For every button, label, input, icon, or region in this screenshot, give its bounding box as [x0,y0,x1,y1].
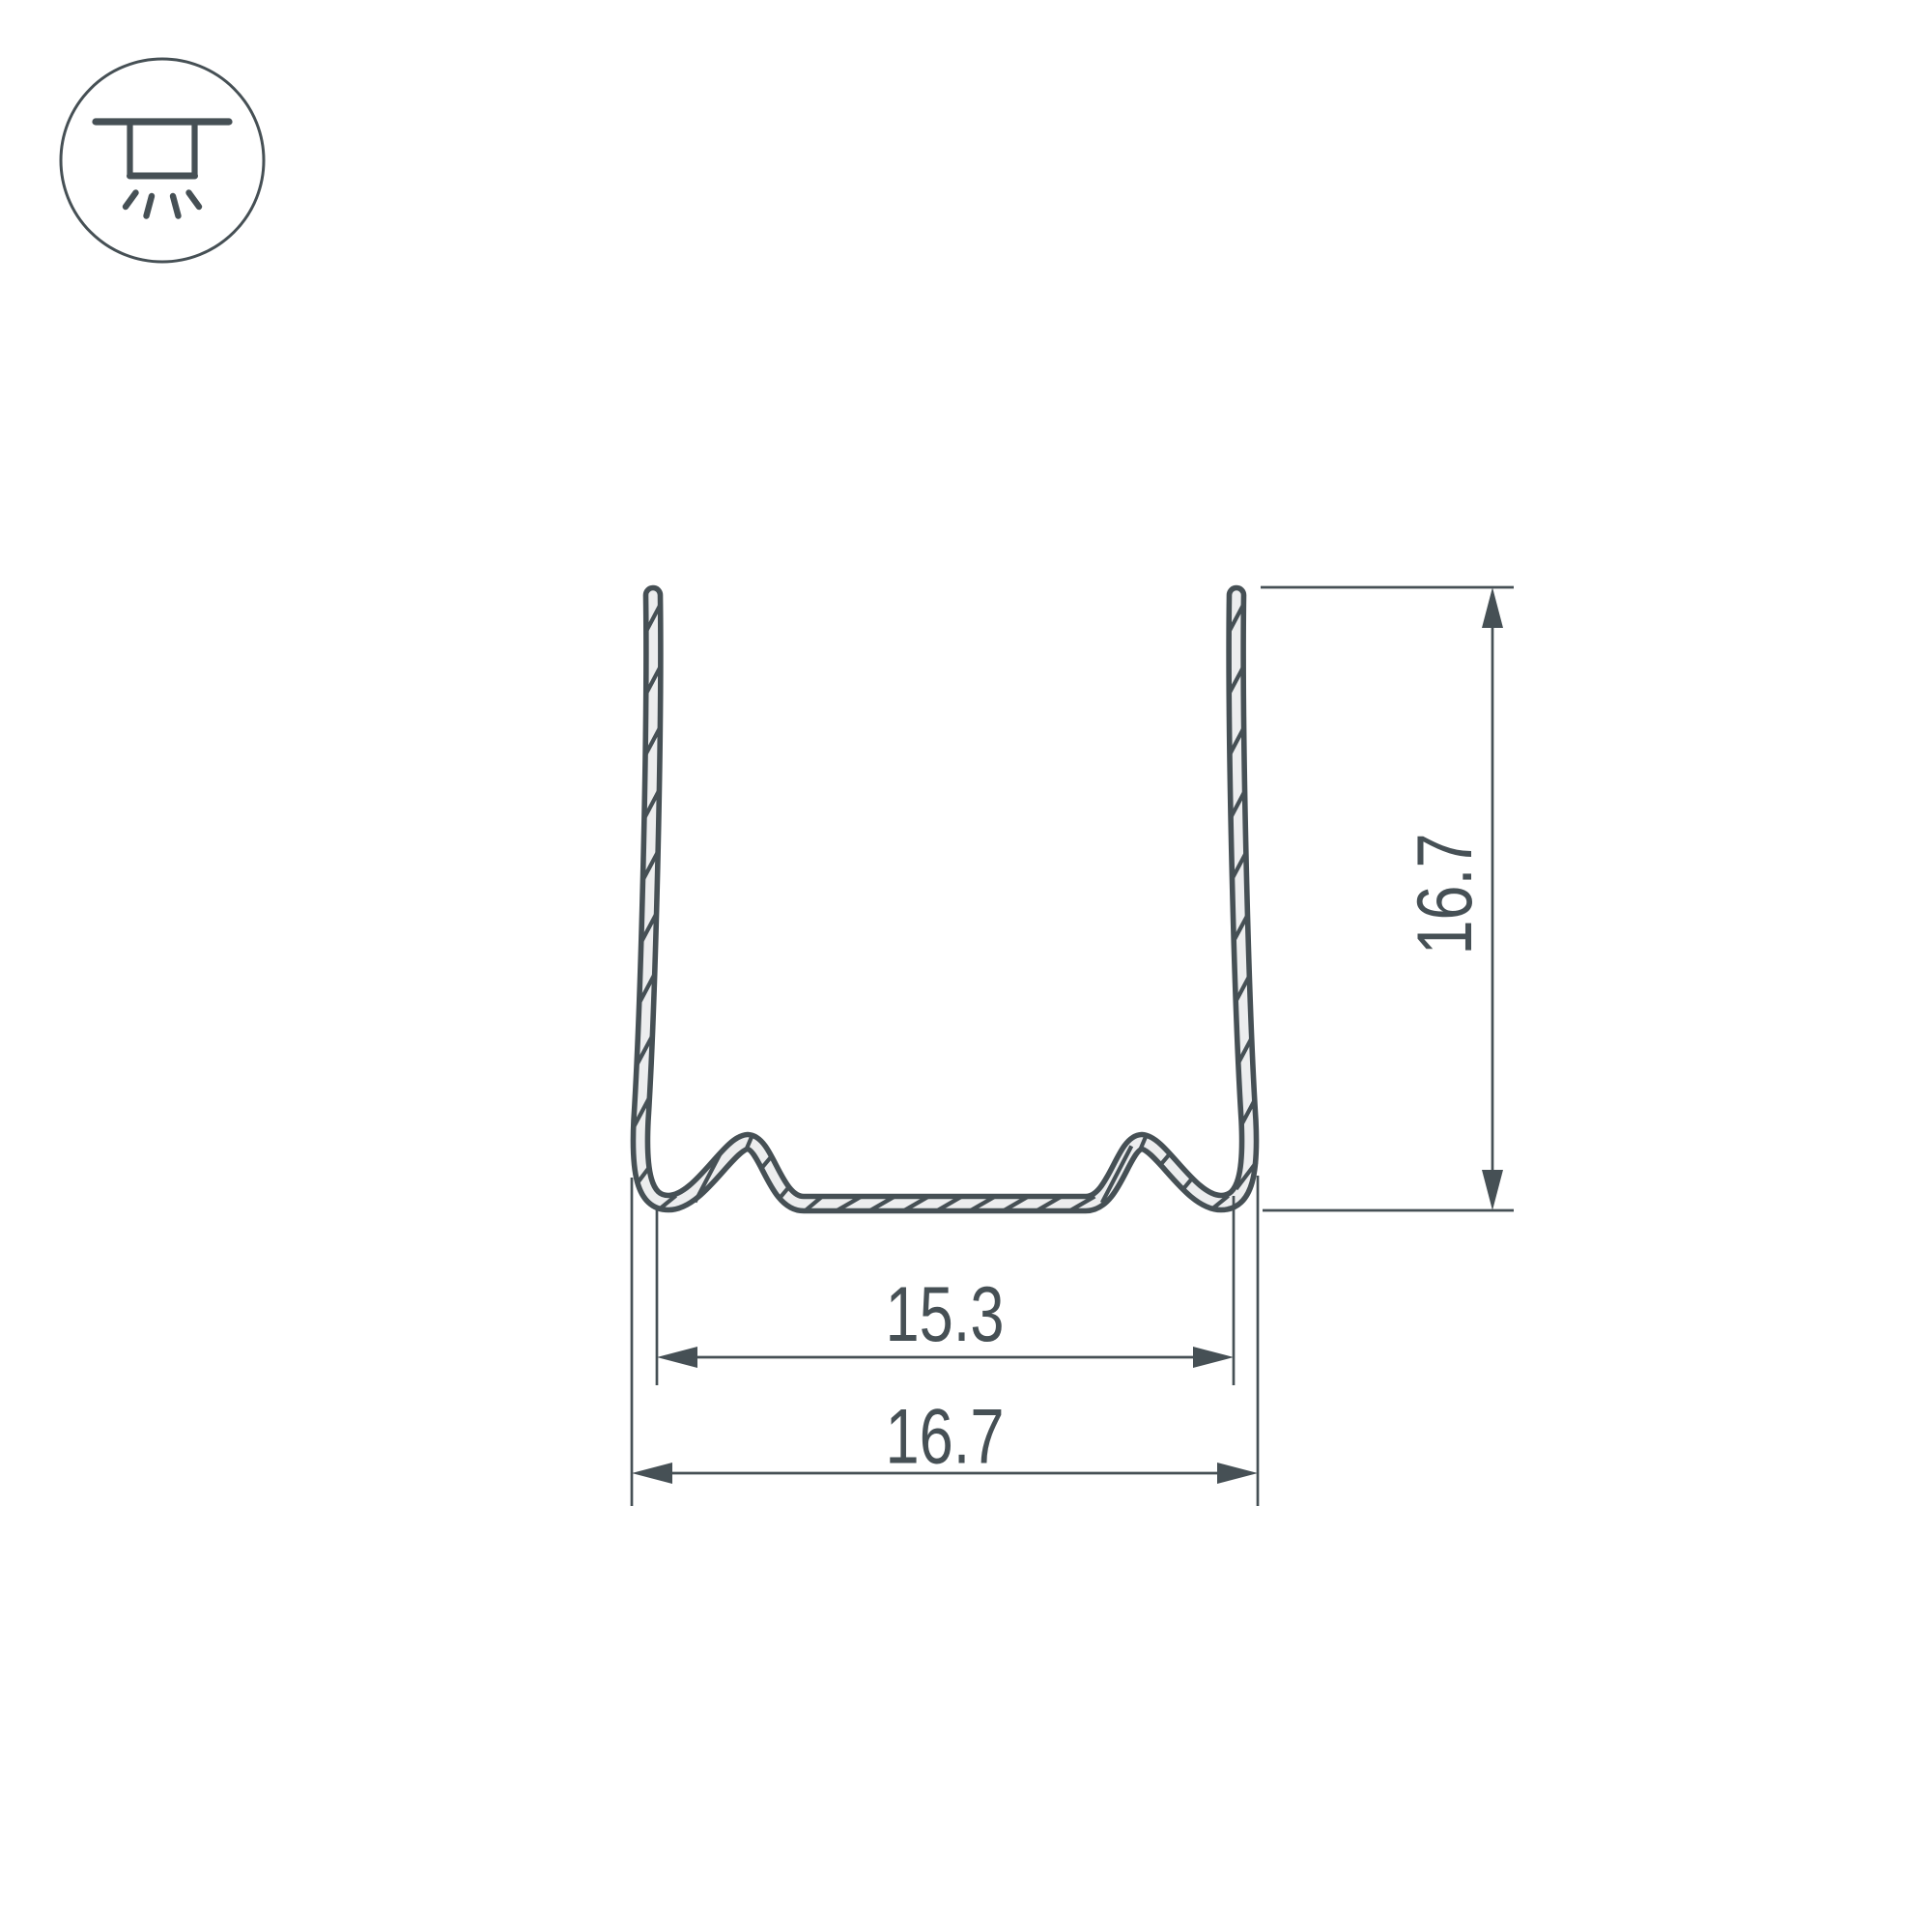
svg-text:16.7: 16.7 [886,1394,1005,1481]
svg-text:16.7: 16.7 [1402,834,1489,955]
svg-text:15.3: 15.3 [886,1271,1005,1358]
